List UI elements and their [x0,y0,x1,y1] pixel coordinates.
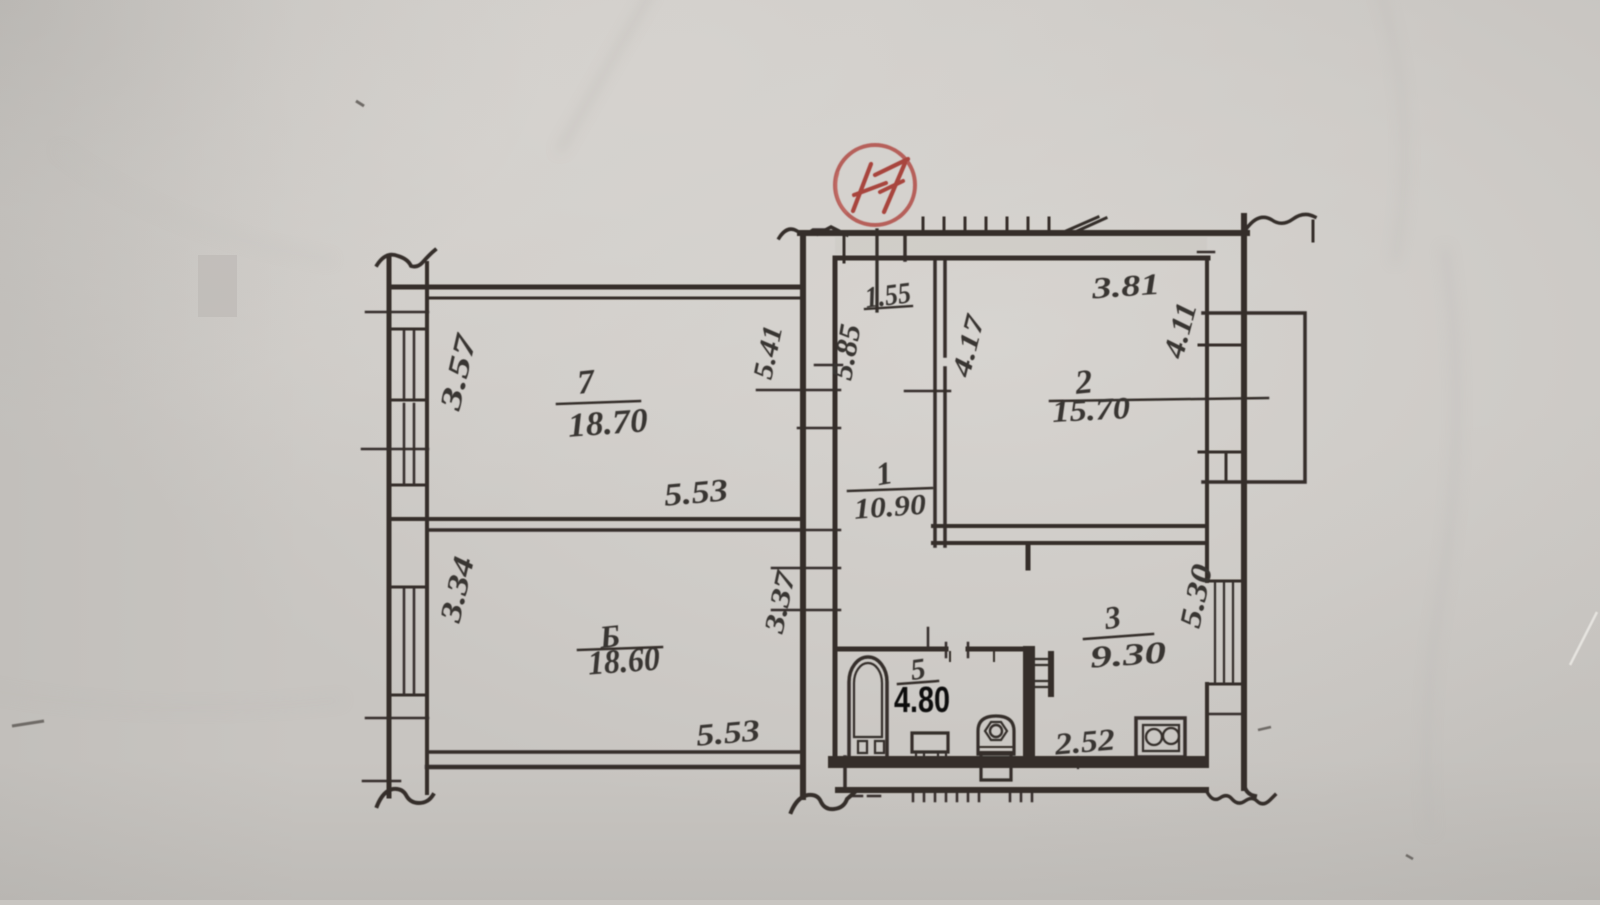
svg-text:9.30: 9.30 [1089,634,1167,674]
svg-text:5.53: 5.53 [662,471,729,512]
svg-text:18.70: 18.70 [567,402,649,444]
svg-text:18.60: 18.60 [587,641,661,683]
svg-text:2.52: 2.52 [1052,721,1116,761]
svg-text:4.80: 4.80 [894,679,950,720]
svg-text:15.70: 15.70 [1051,390,1131,429]
svg-text:1.55: 1.55 [863,276,913,314]
svg-text:3.81: 3.81 [1090,268,1161,306]
svg-text:5.53: 5.53 [695,712,762,752]
svg-text:10.90: 10.90 [853,489,927,526]
